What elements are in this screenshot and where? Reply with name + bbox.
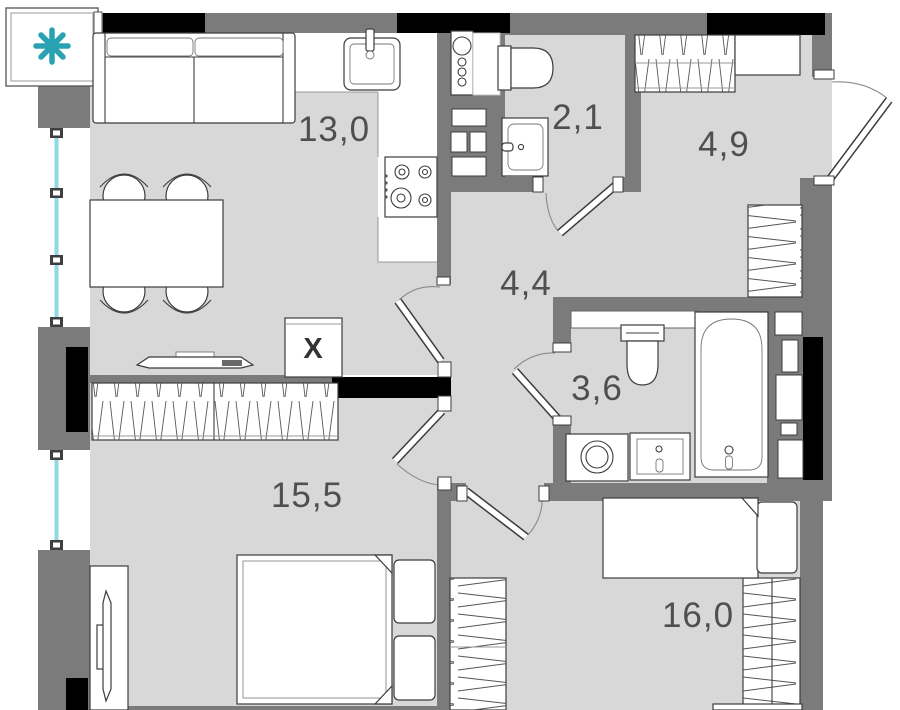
washing-machine bbox=[566, 434, 628, 481]
window-left-upper bbox=[50, 128, 63, 327]
window-cap bbox=[50, 540, 63, 550]
sofa bbox=[93, 33, 295, 123]
entry-cabinet bbox=[735, 35, 800, 75]
window-mullion bbox=[50, 188, 63, 198]
label-bathroom: 3,6 bbox=[571, 369, 623, 408]
label-hallway: 4,4 bbox=[500, 264, 552, 303]
wardrobe-entry-right bbox=[748, 205, 802, 297]
floor-kitchen-doorway bbox=[437, 284, 451, 362]
washbasin-wc bbox=[502, 118, 548, 176]
desk-tv bbox=[90, 566, 128, 710]
duct-box: X bbox=[285, 318, 342, 377]
wardrobe-bedroom-2-left bbox=[450, 578, 506, 710]
stove bbox=[384, 157, 437, 217]
bathtub bbox=[695, 312, 768, 477]
pillow bbox=[394, 636, 435, 700]
wardrobe-bedroom-2-right bbox=[743, 578, 800, 708]
duct-label: X bbox=[303, 333, 323, 365]
floor-entrance-doorway bbox=[812, 77, 832, 183]
window-left-lower bbox=[50, 450, 63, 550]
pillow bbox=[394, 560, 435, 623]
floor-wc-doorway bbox=[543, 177, 613, 192]
furniture-cropped bbox=[713, 704, 802, 710]
floor-bathroom-doorway bbox=[553, 351, 571, 417]
label-kitchen-living: 13,0 bbox=[298, 110, 370, 149]
floor-hallway-west bbox=[451, 192, 553, 483]
pillow bbox=[757, 502, 797, 573]
toilet-wc bbox=[498, 46, 553, 90]
label-bedroom-2: 16,0 bbox=[662, 596, 734, 635]
kitchen-sink bbox=[344, 29, 400, 90]
label-wc: 2,1 bbox=[552, 98, 604, 137]
window-mullion bbox=[50, 255, 63, 265]
wardrobe-bedroom-1 bbox=[92, 383, 338, 440]
label-entry-hall: 4,9 bbox=[698, 125, 750, 164]
floor-entry-hall-2 bbox=[641, 205, 748, 297]
single-bed bbox=[603, 498, 797, 578]
window-cap bbox=[50, 450, 63, 460]
window-cap bbox=[50, 128, 63, 138]
label-bedroom-1: 15,5 bbox=[271, 476, 343, 515]
window-cap bbox=[50, 317, 63, 327]
floor-plan: X bbox=[0, 0, 900, 710]
washbasin-bathroom bbox=[630, 433, 690, 480]
snowflake-icon bbox=[36, 30, 68, 62]
ac-unit bbox=[6, 8, 102, 86]
floor-hallway-north bbox=[553, 192, 641, 297]
tv-bedroom bbox=[103, 591, 111, 701]
dining-table bbox=[90, 200, 223, 287]
floor-plan-canvas: X bbox=[0, 0, 900, 710]
